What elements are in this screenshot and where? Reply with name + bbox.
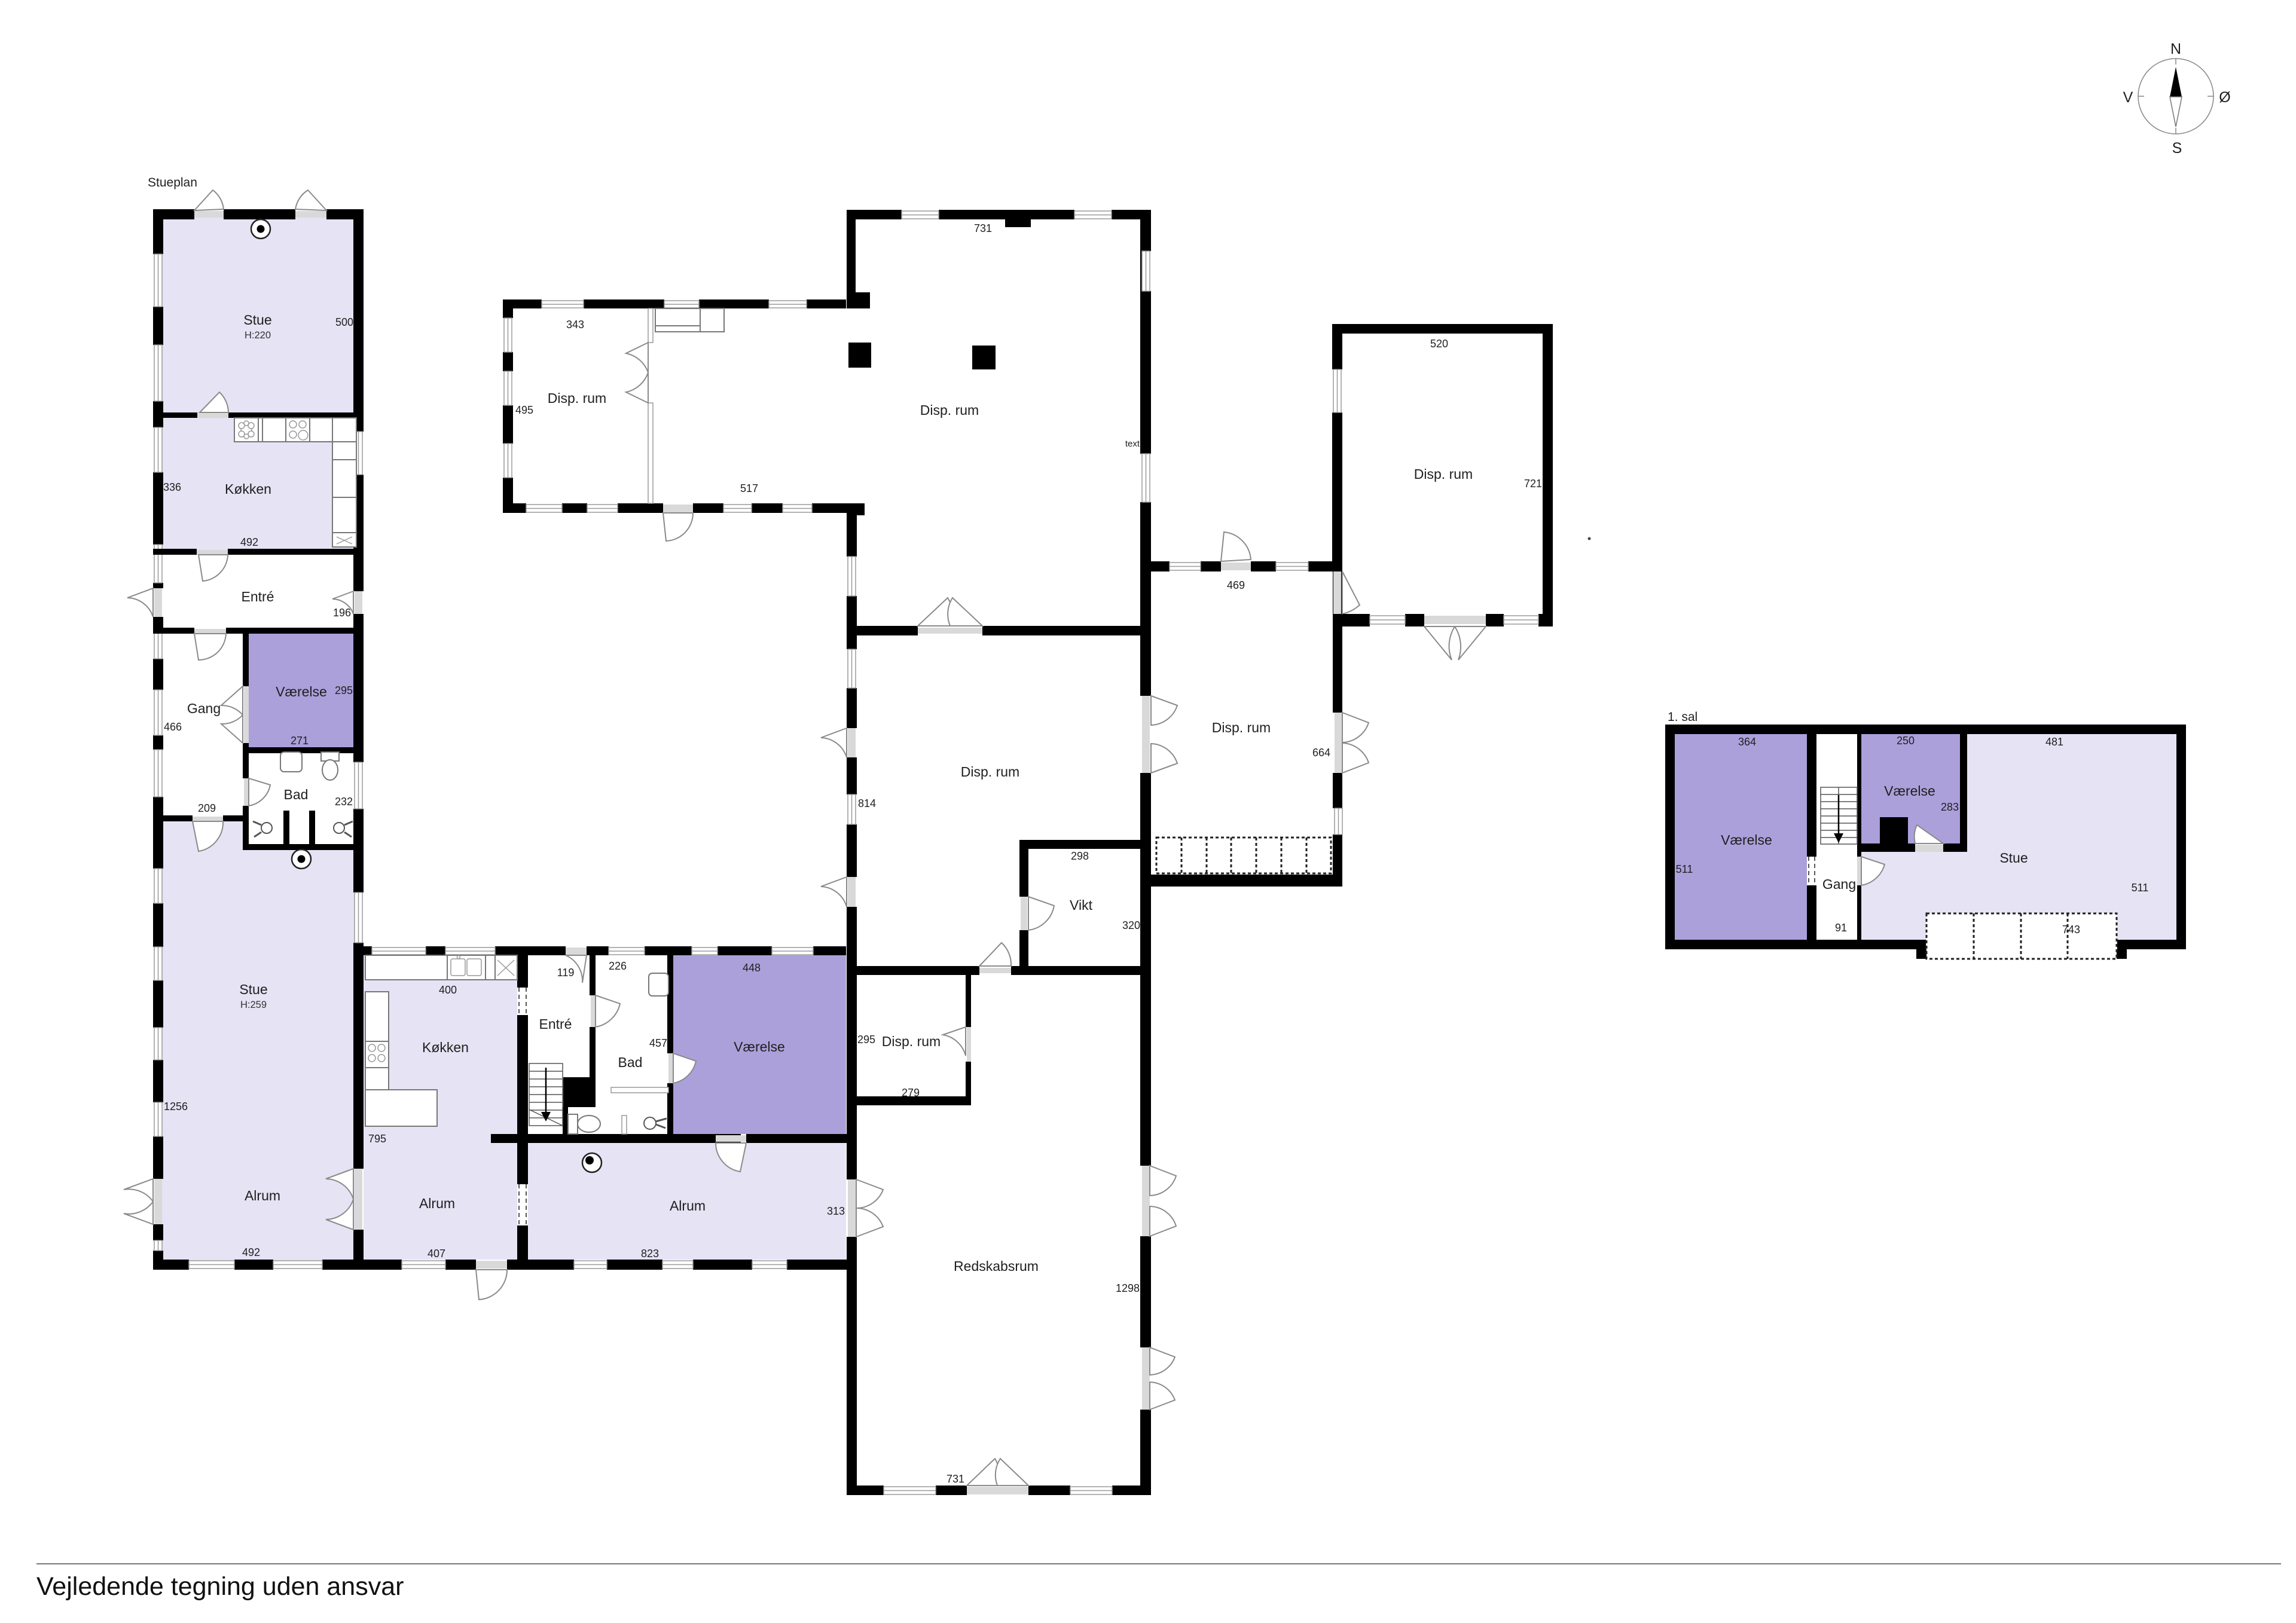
svg-text:H:220: H:220 (245, 330, 271, 341)
svg-text:313: 313 (827, 1205, 845, 1217)
svg-text:250: 250 (1897, 735, 1915, 747)
svg-text:Værelse: Værelse (734, 1039, 785, 1055)
svg-text:232: 232 (335, 796, 353, 808)
svg-text:226: 226 (609, 960, 627, 972)
svg-text:Stue: Stue (1999, 850, 2028, 866)
svg-text:N: N (2170, 41, 2181, 57)
svg-text:Disp. rum: Disp. rum (548, 390, 606, 406)
svg-text:795: 795 (368, 1133, 386, 1145)
svg-text:Stue: Stue (239, 982, 267, 997)
svg-text:Entré: Entré (539, 1016, 572, 1032)
svg-text:Køkken: Køkken (422, 1040, 469, 1055)
svg-text:279: 279 (902, 1087, 920, 1099)
svg-text:320: 320 (1122, 919, 1140, 931)
svg-text:209: 209 (198, 802, 216, 814)
svg-text:91: 91 (1835, 922, 1847, 934)
svg-text:Disp. rum: Disp. rum (882, 1034, 941, 1049)
svg-text:Redskabsrum: Redskabsrum (954, 1258, 1039, 1274)
svg-text:492: 492 (240, 536, 258, 548)
svg-text:364: 364 (1738, 736, 1756, 748)
svg-text:400: 400 (439, 984, 457, 996)
svg-text:Stueplan: Stueplan (148, 176, 197, 189)
svg-text:Køkken: Køkken (225, 481, 271, 497)
svg-text:Disp. rum: Disp. rum (1212, 720, 1271, 735)
svg-text:407: 407 (428, 1248, 445, 1260)
svg-text:469: 469 (1227, 579, 1245, 591)
svg-text:721: 721 (1524, 478, 1542, 490)
svg-text:664: 664 (1312, 747, 1330, 759)
svg-text:Disp. rum: Disp. rum (1414, 466, 1473, 482)
svg-text:295: 295 (857, 1034, 875, 1046)
svg-text:271: 271 (291, 735, 309, 747)
svg-text:511: 511 (1676, 863, 1693, 875)
svg-text:448: 448 (743, 962, 761, 974)
svg-text:743: 743 (2062, 924, 2080, 936)
svg-text:text: text (1125, 439, 1140, 449)
svg-text:Alrum: Alrum (670, 1198, 706, 1214)
svg-text:Bad: Bad (284, 787, 309, 802)
svg-text:457: 457 (649, 1037, 667, 1049)
svg-text:731: 731 (974, 222, 992, 234)
svg-text:Alrum: Alrum (419, 1196, 455, 1211)
svg-text:V: V (2123, 89, 2133, 106)
svg-text:Værelse: Værelse (276, 684, 327, 699)
svg-text:298: 298 (1071, 850, 1089, 862)
svg-text:517: 517 (740, 482, 758, 494)
svg-text:1298: 1298 (1116, 1282, 1140, 1294)
svg-text:492: 492 (242, 1246, 260, 1258)
svg-text:Disp. rum: Disp. rum (961, 764, 1019, 780)
svg-text:343: 343 (566, 319, 584, 331)
svg-text:Vikt: Vikt (1070, 897, 1093, 913)
svg-text:S: S (2172, 140, 2182, 157)
svg-text:336: 336 (163, 481, 181, 493)
svg-text:511: 511 (2132, 882, 2149, 894)
svg-text:520: 520 (1430, 338, 1448, 350)
svg-text:196: 196 (333, 607, 351, 619)
svg-text:283: 283 (1941, 801, 1959, 813)
svg-text:Entré: Entré (242, 589, 274, 604)
svg-text:466: 466 (164, 721, 182, 733)
svg-text:Værelse: Værelse (1884, 783, 1935, 799)
svg-text:Værelse: Værelse (1721, 832, 1772, 848)
svg-text:1. sal: 1. sal (1668, 710, 1697, 724)
svg-text:Ø: Ø (2219, 89, 2230, 106)
svg-text:481: 481 (2045, 736, 2063, 748)
svg-text:Bad: Bad (618, 1055, 643, 1070)
svg-text:Disp. rum: Disp. rum (920, 402, 979, 418)
svg-text:731: 731 (947, 1473, 964, 1485)
svg-text:814: 814 (858, 797, 876, 809)
svg-text:500: 500 (335, 316, 353, 328)
svg-text:119: 119 (557, 967, 575, 979)
svg-text:1256: 1256 (164, 1101, 188, 1112)
svg-text:495: 495 (515, 404, 533, 416)
svg-text:H:259: H:259 (240, 1000, 267, 1010)
svg-text:Vejledende tegning uden ansvar: Vejledende tegning uden ansvar (36, 1572, 404, 1601)
svg-text:Stue: Stue (243, 312, 271, 328)
svg-text:Gang: Gang (187, 701, 221, 716)
svg-text:295: 295 (335, 684, 353, 696)
svg-text:Alrum: Alrum (245, 1188, 280, 1203)
svg-text:Gang: Gang (1822, 876, 1856, 892)
svg-text:823: 823 (641, 1248, 659, 1260)
